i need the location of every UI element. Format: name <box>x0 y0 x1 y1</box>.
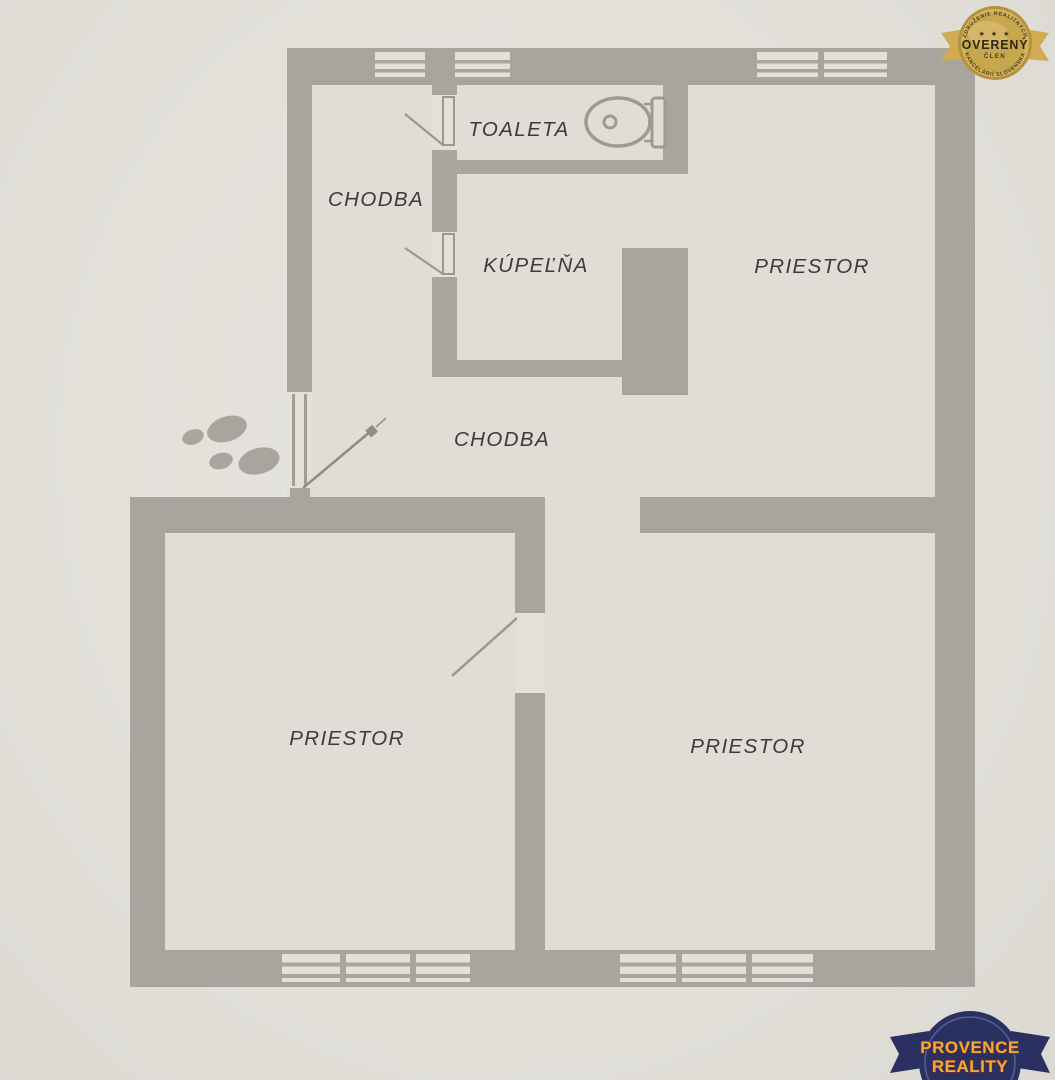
wall-entrance-stub <box>290 488 310 501</box>
footprint-sole <box>235 443 282 479</box>
window-bar <box>620 963 813 967</box>
footprint-heel <box>207 450 234 472</box>
room-label-priestor-bottom-left: PRIESTOR <box>289 727 405 750</box>
wall-mid-right <box>640 497 975 533</box>
window-mullion <box>676 954 682 982</box>
room-label-priestor-bottom-right: PRIESTOR <box>690 735 806 758</box>
window-top-3 <box>757 52 887 77</box>
window-glass <box>455 52 510 77</box>
window-bar <box>282 974 470 978</box>
door-leaf <box>443 234 454 274</box>
door-leaf <box>443 97 454 145</box>
wall-kupelna-bottom <box>432 360 623 377</box>
window-bar <box>375 60 425 64</box>
room-label-chodba-top: CHODBA <box>328 188 424 211</box>
door-entrance <box>287 392 312 488</box>
floor-bottom-section <box>130 497 975 987</box>
room-label-kupelna: KÚPEĽŇA <box>483 254 589 277</box>
door-opening <box>287 392 312 488</box>
agency-line2: REALITY <box>932 1057 1008 1076</box>
footprint-sole <box>204 411 251 447</box>
wall-toaleta-bottom <box>432 160 688 174</box>
window-bar <box>375 69 425 73</box>
window-bar <box>620 974 813 978</box>
wall-mid-left <box>130 497 545 533</box>
room-label-toaleta: TOALETA <box>468 118 569 141</box>
wall-pillar-block <box>622 248 688 395</box>
wall-divider-lower <box>515 693 545 987</box>
window-mullion <box>410 954 416 982</box>
wall-toaleta-right <box>663 48 688 174</box>
window-top-1 <box>375 52 425 77</box>
seal-subtitle: ČLEN <box>984 53 1006 60</box>
wall-divider-upper <box>515 497 545 613</box>
wall-inner-seg1 <box>432 48 457 95</box>
toilet-bowl <box>586 98 650 146</box>
window-bottom-right <box>620 954 813 982</box>
window-bar <box>455 60 510 64</box>
floor-plan-drawing: CHODBA TOALETA KÚPEĽŇA PRIESTOR CHODBA P… <box>0 0 1055 1080</box>
toilet-tank <box>652 98 665 147</box>
seal-stars: ★ ★ ★ <box>979 30 1012 38</box>
window-mullion <box>340 954 346 982</box>
footprints-icon <box>180 411 282 479</box>
room-label-priestor-top-right: PRIESTOR <box>754 255 870 278</box>
agency-badge: PROVENCE REALITY <box>890 1011 1050 1080</box>
seal-title: OVERENÝ <box>962 37 1029 52</box>
window-mullion <box>818 52 824 77</box>
window-bar <box>282 963 470 967</box>
window-glass <box>375 52 425 77</box>
wall-left-outer <box>130 497 165 987</box>
door-leaf-line <box>292 394 295 486</box>
window-top-2 <box>455 52 510 77</box>
door-leaf-line <box>304 394 307 486</box>
footprint-heel <box>180 426 206 447</box>
window-bar <box>455 69 510 73</box>
agency-line1: PROVENCE <box>920 1038 1019 1057</box>
toilet-icon <box>586 98 665 147</box>
window-mullion <box>746 954 752 982</box>
wall-bottom <box>130 950 975 987</box>
door-opening <box>515 613 545 693</box>
wall-chodba-left <box>287 48 312 392</box>
room-label-chodba-mid: CHODBA <box>454 428 550 451</box>
floor-plan-photo: CHODBA TOALETA KÚPEĽŇA PRIESTOR CHODBA P… <box>0 0 1055 1080</box>
window-bottom-left <box>282 954 470 982</box>
